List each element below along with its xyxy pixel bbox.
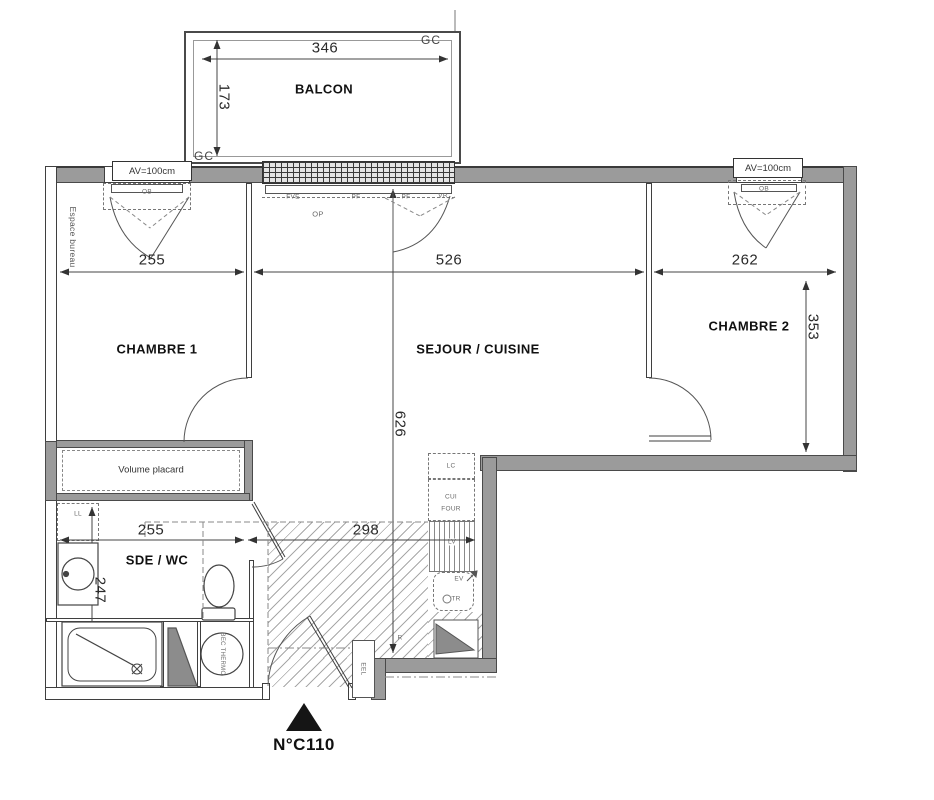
dim-hall-width: 298 xyxy=(353,522,380,539)
washer-box xyxy=(57,503,99,541)
window-right-av-box: AV=100cm xyxy=(733,158,803,178)
room-label-sde: SDE / WC xyxy=(126,553,188,568)
wall-sde-divider xyxy=(46,618,254,622)
kitchen-lc-label: LC xyxy=(447,463,456,470)
bec-thermo-label: BEC THERMO xyxy=(219,633,225,676)
wall-right xyxy=(843,166,857,472)
av-right-label: AV=100cm xyxy=(745,163,791,174)
volume-placard-label: Volume placard xyxy=(118,465,183,476)
washer-label: LL xyxy=(74,511,82,518)
dim-sde-width: 255 xyxy=(138,522,165,539)
bay-window-grid xyxy=(262,161,455,184)
kitchen-counter-stripes xyxy=(429,521,475,572)
kitchen-ev-label: EV xyxy=(454,576,463,583)
dim-chambre2-depth: 353 xyxy=(805,314,822,341)
wall-bottom xyxy=(45,687,270,700)
pf-label-1: PF xyxy=(352,194,361,201)
window-left-clearance xyxy=(103,183,191,210)
fve-label: FVE xyxy=(286,194,300,201)
dim-balcony-width: 346 xyxy=(312,40,339,57)
entrance-marker xyxy=(286,703,322,731)
eel-label: EEL xyxy=(360,662,367,675)
wall-placard-bottom xyxy=(45,493,250,501)
window-left-av-box: AV=100cm xyxy=(112,161,192,181)
wall-chambre2-bottom xyxy=(480,455,857,471)
wall-entry-band xyxy=(380,658,497,673)
dim-chambre2-width: 262 xyxy=(732,252,759,269)
dim-sde-depth: 247 xyxy=(92,577,109,604)
wall-placard-right xyxy=(244,440,253,501)
wall-left-grey-segment xyxy=(45,441,57,501)
pf-label-2: PF xyxy=(402,194,411,201)
ob-label-left: OB xyxy=(142,189,152,196)
room-label-balcon: BALCON xyxy=(295,82,353,97)
vr-label: VR xyxy=(438,193,448,200)
dim-sejour-width: 526 xyxy=(436,252,463,269)
r-label: R xyxy=(398,635,403,642)
dim-chambre1-width: 255 xyxy=(139,252,166,269)
entry-hatch-kitchen xyxy=(428,612,482,658)
kitchen-four-label: FOUR xyxy=(441,506,461,513)
floor-plan: GC GC BALCON AV=100cm AV=100cm Volume pl… xyxy=(0,0,934,800)
wall-placard-top xyxy=(45,440,253,448)
ob-label-right: OB xyxy=(759,186,769,193)
wall-sde-hall xyxy=(249,560,254,688)
kitchen-tr-label: TR xyxy=(451,596,460,603)
av-left-label: AV=100cm xyxy=(129,166,175,177)
wall-chambre1-sejour xyxy=(246,183,252,378)
kitchen-cui-label: CUI xyxy=(445,494,457,501)
unit-number: N°C110 xyxy=(273,735,335,755)
gc-label-bottom: GC xyxy=(194,149,214,163)
wall-shower-right xyxy=(160,620,164,687)
window-right-clearance xyxy=(728,180,806,205)
kitchen-lv-label: LV xyxy=(446,539,458,546)
room-label-chambre1: CHAMBRE 1 xyxy=(117,342,198,357)
op-label: OP xyxy=(312,210,323,219)
dim-balcony-depth: 173 xyxy=(216,84,233,111)
entry-hatch-main xyxy=(268,522,428,658)
room-label-sejour: SEJOUR / CUISINE xyxy=(416,342,539,357)
espace-bureau-label: Espace bureau xyxy=(68,206,78,267)
window-swings xyxy=(110,190,800,258)
wall-bec-left xyxy=(197,620,201,687)
wall-sejour-chambre2 xyxy=(646,183,652,378)
wall-kitchen-right xyxy=(482,457,497,673)
gc-label-top: GC xyxy=(421,33,441,47)
plan-linework xyxy=(0,0,934,800)
entry-hatch-door xyxy=(268,658,352,687)
dim-sejour-depth: 626 xyxy=(392,411,409,438)
room-label-chambre2: CHAMBRE 2 xyxy=(709,319,790,334)
